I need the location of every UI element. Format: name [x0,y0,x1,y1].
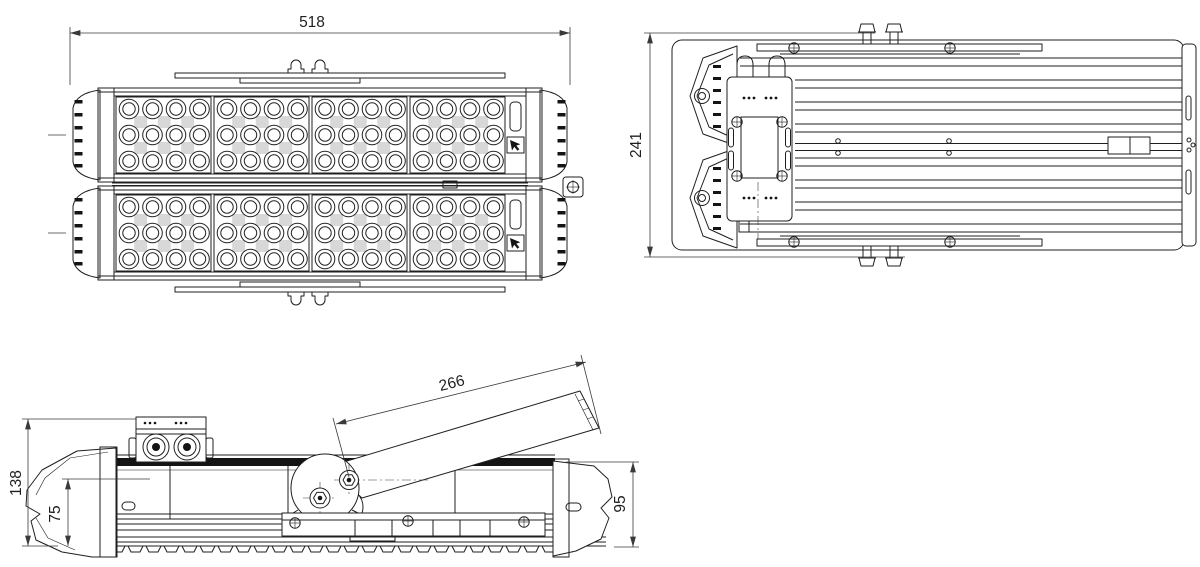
junction-box [129,417,213,462]
led-module-top [73,88,567,182]
dim-housing-height-label: 95 [612,495,629,512]
driver-mounting-plate [727,56,792,246]
lens-serration [110,546,575,552]
led-module-bottom [73,186,567,280]
top-mounting-bar [757,24,1042,54]
dim-arm-length-label: 266 [437,372,466,395]
hanging-bolt [885,24,903,44]
hanging-bolt [885,246,903,266]
floodlight-technical-drawing: 518 [0,0,1200,567]
bottom-mounting-bar [757,236,1042,266]
seam-screws [836,139,952,156]
cable-loop [737,56,753,79]
mounting-bolt [288,292,304,305]
end-plate [1182,44,1196,246]
top-view: 241 [628,24,1196,266]
top-mounting-bracket [175,60,505,83]
bracket-base-plate [282,510,545,541]
dim-overall-depth-label: 241 [628,132,645,158]
hanging-bolt [858,24,876,44]
dim-front-width: 518 [70,14,570,85]
cable-loop [769,56,785,79]
bottom-mounting-bracket [175,282,505,305]
dim-front-width-label: 518 [299,14,325,31]
mounting-bolt [312,292,328,305]
hanging-bolt [858,246,876,266]
side-view: 266 138 75 95 [8,355,639,557]
dim-lower-height-label: 75 [47,505,64,522]
cable-gland [174,434,200,460]
technical-drawing-page: 518 [0,0,1200,567]
front-view: 518 [48,14,583,305]
mounting-bolt [288,60,304,73]
mounting-bolt [312,60,328,73]
cable-gland [143,434,169,460]
dim-total-height-label: 138 [8,470,25,496]
side-hinge [563,177,583,197]
center-connector [1108,137,1150,154]
